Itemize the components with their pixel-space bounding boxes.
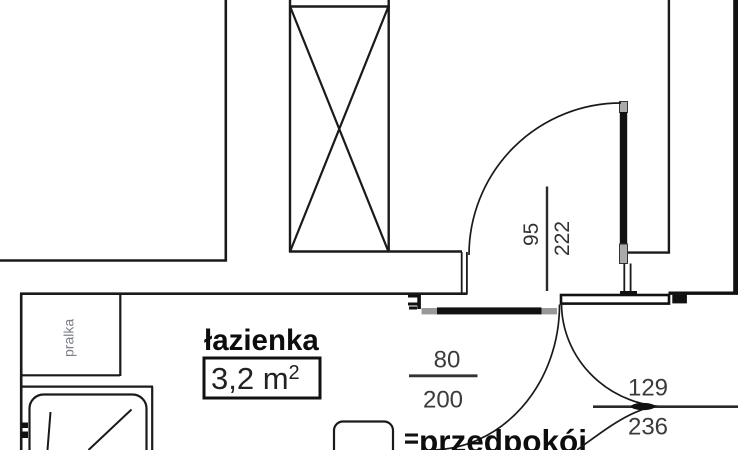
svg-text:222: 222 <box>551 221 574 256</box>
svg-text:łazienka: łazienka <box>204 324 319 357</box>
svg-text:200: 200 <box>423 387 463 414</box>
svg-text:pralka: pralka <box>61 319 77 357</box>
svg-text:3,2 m2: 3,2 m2 <box>211 361 300 396</box>
svg-text:129: 129 <box>628 375 668 402</box>
svg-text:przedpokój: przedpokój <box>419 423 587 450</box>
svg-text:80: 80 <box>434 347 461 374</box>
svg-text:95: 95 <box>520 223 543 246</box>
svg-text:236: 236 <box>628 414 668 441</box>
